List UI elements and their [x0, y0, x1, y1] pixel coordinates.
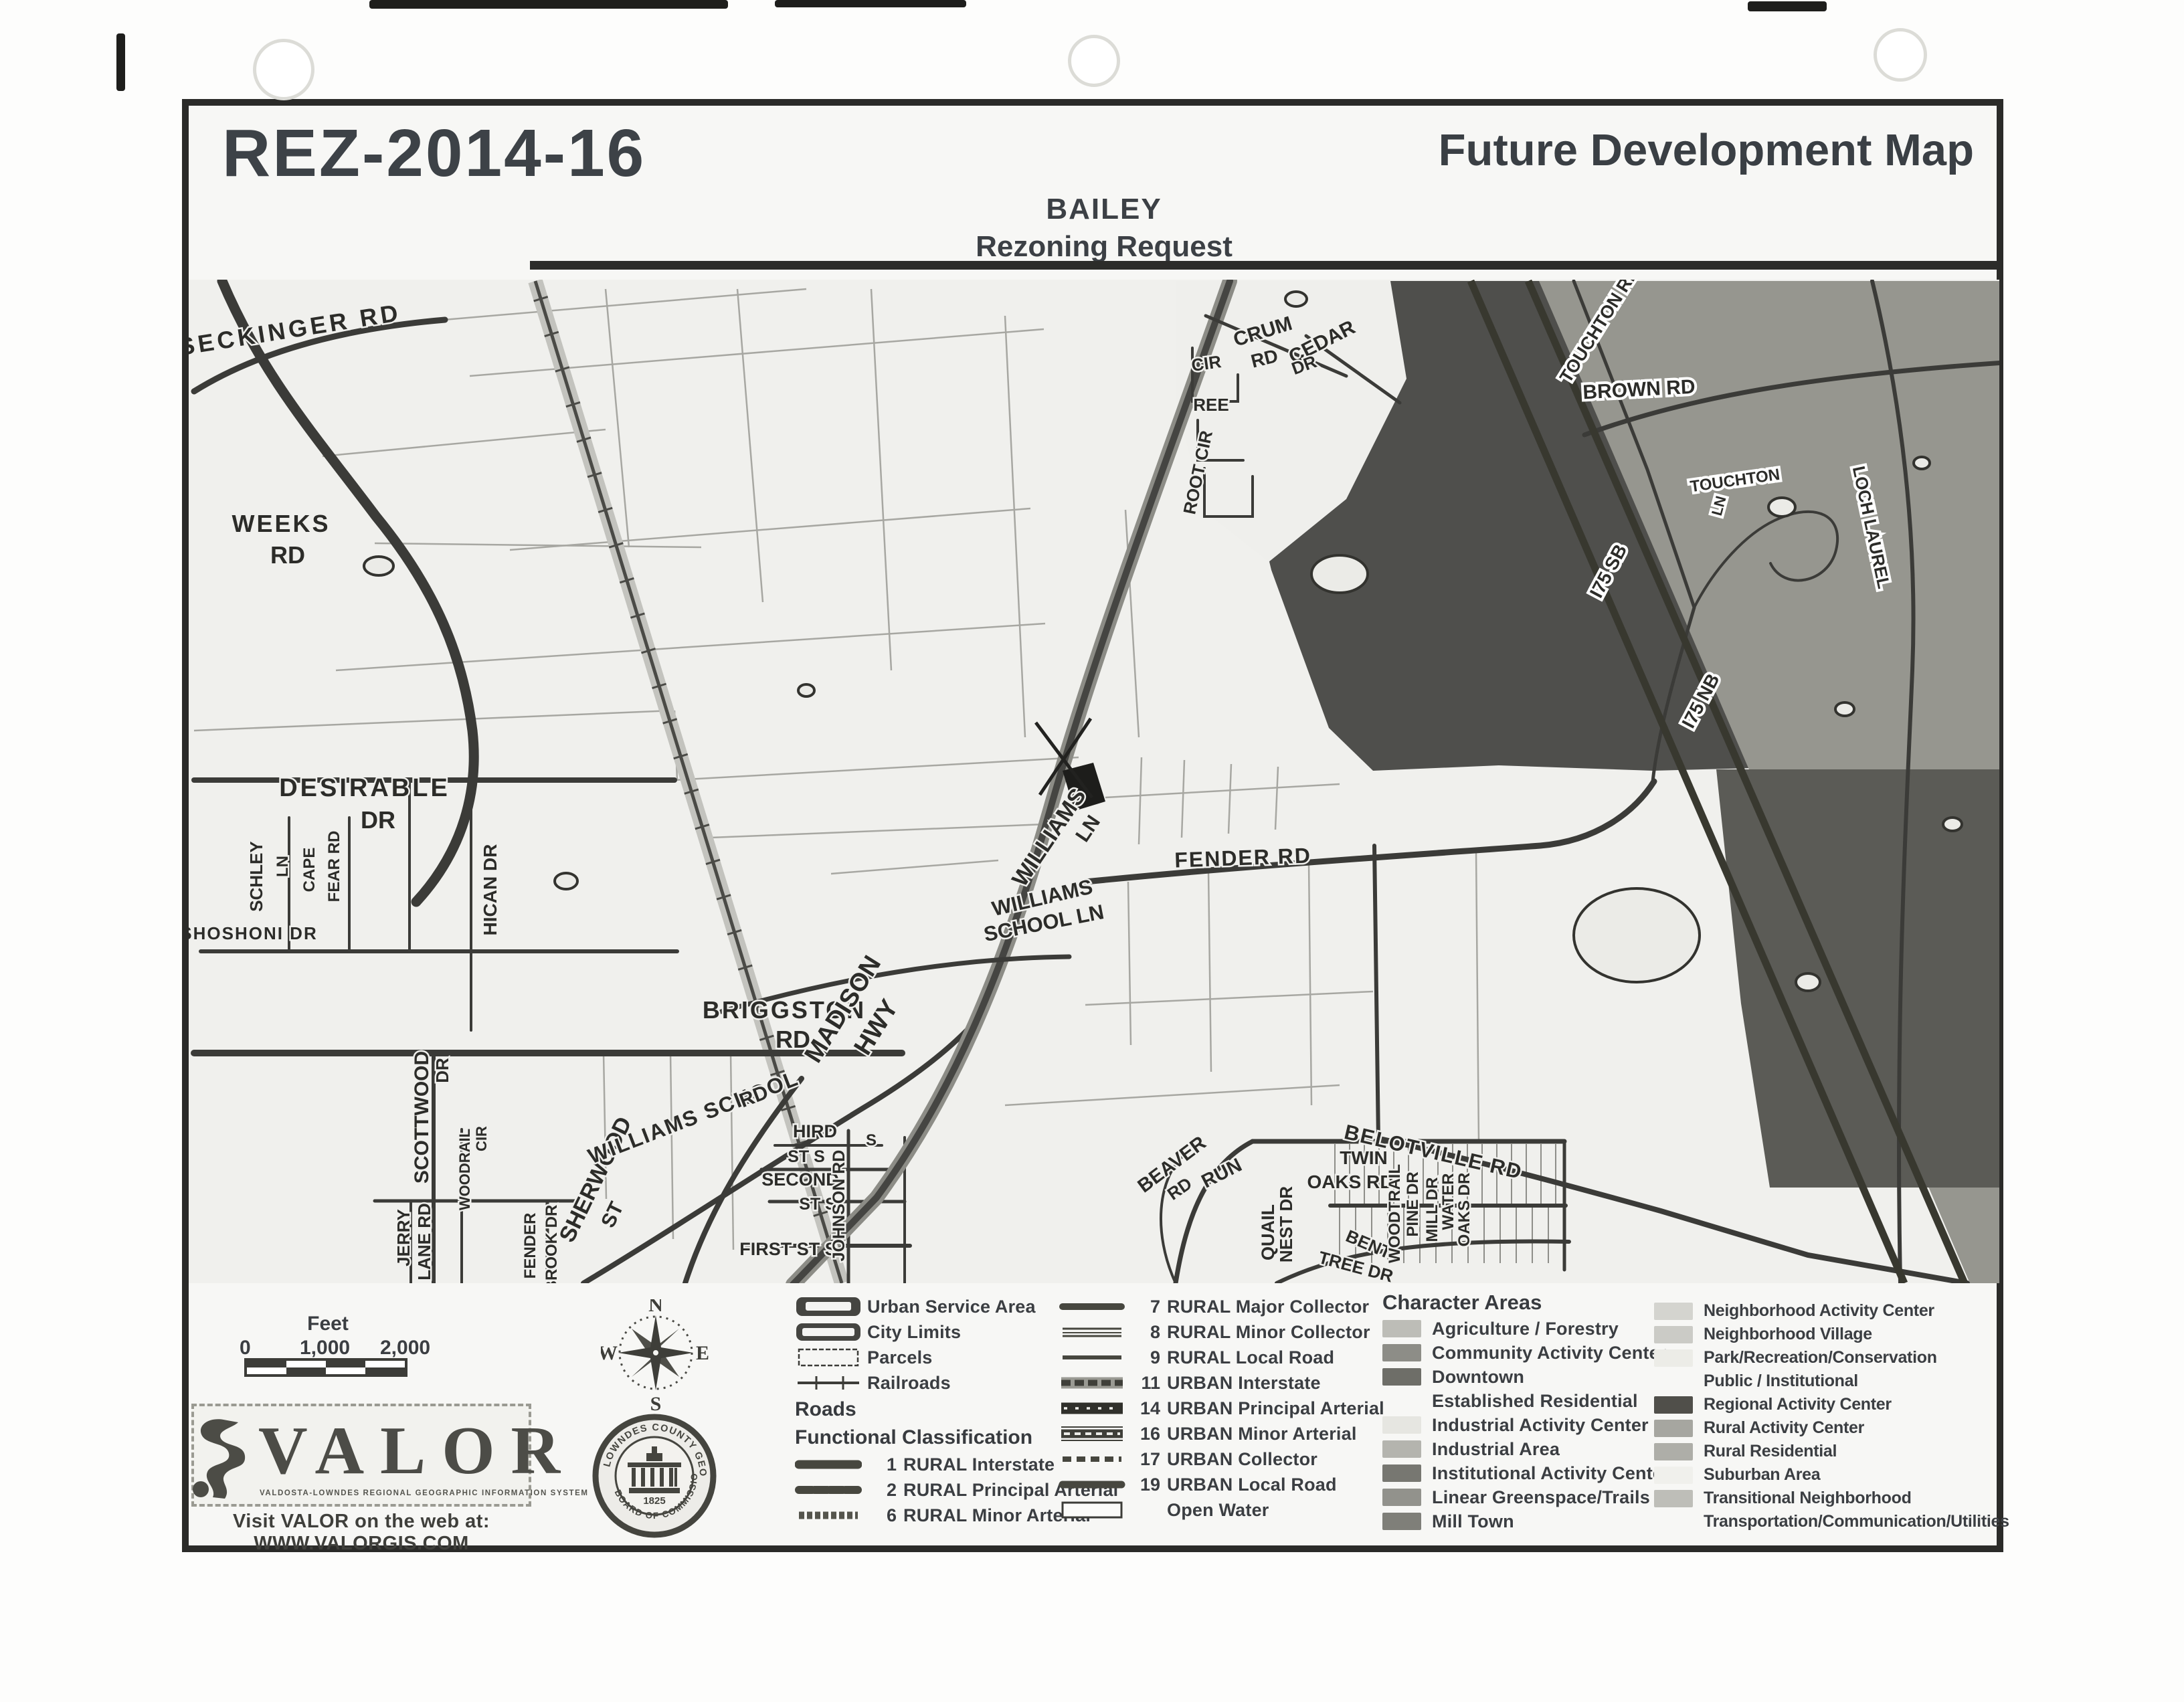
legend-item: Neighborhood Activity Center: [1654, 1299, 2002, 1323]
legend-item: Community Activity Center: [1382, 1341, 1650, 1365]
legend-item: Neighborhood Village: [1654, 1323, 2002, 1346]
legend-item: Regional Activity Center: [1654, 1393, 2002, 1416]
pond: [364, 557, 393, 575]
scanned-rezoning-map-page: REZ-2014-16 Future Development Map BAILE…: [0, 0, 2184, 1702]
road-label: CAPE: [300, 848, 318, 892]
legend-item: Industrial Activity Center: [1382, 1413, 1650, 1437]
legend-item: 8RURAL Minor Collector: [1059, 1319, 1380, 1345]
road-label: SCHLEY: [246, 841, 266, 911]
legend-label: Community Activity Center: [1432, 1343, 1667, 1363]
road-label: QUAIL: [1258, 1204, 1278, 1260]
legend-symbol: [795, 1347, 867, 1367]
legend-class-number: 7: [1131, 1297, 1167, 1317]
legend-item: Agriculture / Forestry: [1382, 1317, 1650, 1341]
legend-class-number: 17: [1131, 1449, 1167, 1470]
legend-label: URBAN Minor Arterial: [1167, 1424, 1357, 1444]
legend-item: Downtown: [1382, 1365, 1650, 1389]
legend-item: Established Residential: [1382, 1389, 1650, 1413]
valor-website-line: Visit VALOR on the web at: WWW.VALORGIS.…: [191, 1511, 531, 1555]
legend-label: Park/Recreation/Conservation: [1704, 1348, 1937, 1367]
pond: [1943, 818, 1962, 831]
legend-label: URBAN Collector: [1167, 1449, 1317, 1470]
legend-heading-character-areas: Character Areas: [1382, 1289, 1650, 1317]
legend-item: 9RURAL Local Road: [1059, 1345, 1380, 1370]
legend-label: URBAN Local Road: [1167, 1475, 1337, 1495]
compass-rose-icon: N S W E: [601, 1299, 711, 1412]
scale-bar-segment: [247, 1361, 286, 1367]
legend-class-number: 8: [1131, 1322, 1167, 1343]
valor-logo-mark: [182, 1416, 256, 1503]
road-label: BROOK DR: [543, 1205, 561, 1293]
scale-tick-2000: 2,000: [380, 1337, 430, 1359]
legend-item: 6RURAL Minor Arterial: [795, 1503, 1063, 1528]
valor-logo-subtitle: VALDOSTA-LOWNDES REGIONAL GEOGRAPHIC INF…: [260, 1489, 589, 1497]
road-label: DR: [432, 1058, 452, 1083]
scale-bar: [244, 1358, 407, 1377]
legend-item: Rural Residential: [1654, 1440, 2002, 1463]
scale-tick-1000: 1,000: [300, 1337, 350, 1359]
pond: [1835, 702, 1854, 716]
legend-column-character-areas-2: Neighborhood Activity CenterNeighborhood…: [1654, 1299, 2002, 1533]
pond: [1796, 973, 1820, 991]
legend-symbol: [1059, 1322, 1131, 1342]
legend-symbol: [1059, 1347, 1131, 1367]
legend-label: RURAL Minor Collector: [1167, 1322, 1370, 1343]
legend-swatch: [1382, 1513, 1421, 1530]
legend-label: City Limits: [867, 1322, 961, 1343]
road-label: JERRY: [393, 1209, 414, 1266]
legend-swatch: [1654, 1303, 1693, 1320]
legend-label: Agriculture / Forestry: [1432, 1319, 1619, 1339]
legend-label: RURAL Local Road: [1167, 1347, 1334, 1368]
legend-swatch: [1382, 1489, 1421, 1506]
road-label: FEAR RD: [325, 831, 343, 903]
legend-heading-functional-classification: Functional Classification: [795, 1424, 1063, 1452]
legend-symbol: [795, 1373, 867, 1393]
legend-item: Rural Activity Center: [1654, 1416, 2002, 1440]
legend-item: 7RURAL Major Collector: [1059, 1294, 1380, 1319]
road-label: SHOSHONI DR: [180, 923, 317, 943]
legend-item: Mill Town: [1382, 1509, 1650, 1533]
legend-label: Downtown: [1432, 1367, 1524, 1388]
legend-item: Transportation/Communication/Utilities: [1654, 1510, 2002, 1533]
road-label: OAKS RD: [1307, 1171, 1393, 1192]
legend-class-number: 9: [1131, 1347, 1167, 1368]
legend-class-number: 1: [867, 1454, 903, 1475]
legend-heading-roads: Roads: [795, 1396, 1063, 1424]
legend-item: Railroads: [795, 1370, 1063, 1396]
road-label: NEST DR: [1276, 1186, 1296, 1262]
legend-label: Parcels: [867, 1347, 932, 1368]
scale-bar-segment: [286, 1367, 326, 1374]
legend-symbol: [1059, 1424, 1131, 1444]
legend-label: URBAN Interstate: [1167, 1373, 1321, 1394]
road-label: FENDER RD: [1174, 843, 1312, 872]
legend-label: Established Residential: [1432, 1391, 1638, 1412]
road-label: JOHNSON RD: [830, 1150, 848, 1262]
legend-class-number: 19: [1131, 1475, 1167, 1495]
legend-label: Urban Service Area: [867, 1297, 1036, 1317]
legend-item: Transitional Neighborhood: [1654, 1487, 2002, 1510]
legend-symbol: [1059, 1500, 1131, 1520]
legend-label: Neighborhood Village: [1704, 1325, 1872, 1344]
legend-item: Urban Service Area: [795, 1294, 1063, 1319]
legend-label: Transportation/Communication/Utilities: [1704, 1512, 2009, 1531]
road-label: WOODRAIL: [456, 1129, 473, 1210]
road-label: WATER: [1439, 1173, 1457, 1230]
legend-label: Public / Institutional: [1704, 1372, 1858, 1391]
compass-north-label: N: [648, 1299, 663, 1316]
pond: [1311, 555, 1368, 593]
road-label: S: [866, 1131, 877, 1149]
legend-label: RURAL Major Collector: [1167, 1297, 1369, 1317]
legend-item: 1RURAL Interstate: [795, 1452, 1063, 1477]
pond: [555, 873, 577, 889]
legend-label: Open Water: [1167, 1500, 1269, 1521]
legend-label: Linear Greenspace/Trails: [1432, 1487, 1650, 1508]
legend-symbol: [795, 1480, 867, 1500]
legend-item: 11URBAN Interstate: [1059, 1370, 1380, 1396]
road-label: ST S: [788, 1147, 825, 1166]
road-label: RD: [270, 541, 305, 569]
legend-class-number: 2: [867, 1480, 903, 1501]
legend-swatch: [1654, 1396, 1693, 1414]
legend-column-character-areas: Character AreasAgriculture / ForestryCom…: [1382, 1289, 1650, 1533]
scale-bar-segment: [365, 1361, 405, 1367]
road-label: HICAN DR: [480, 844, 500, 936]
legend-symbol: [795, 1505, 867, 1525]
road-label: CIR: [473, 1126, 490, 1151]
legend-swatch: [1382, 1440, 1421, 1458]
legend-class-number: 11: [1131, 1373, 1167, 1394]
road-label: LANE RD: [414, 1203, 434, 1281]
legend-label: Rural Residential: [1704, 1442, 1837, 1461]
legend-symbol: [1059, 1398, 1131, 1418]
legend-label: URBAN Principal Arterial: [1167, 1398, 1384, 1419]
legend-symbol: [795, 1297, 867, 1317]
legend-swatch: [1382, 1392, 1421, 1410]
pond: [1574, 888, 1700, 982]
legend-swatch: [1654, 1513, 1693, 1531]
legend-swatch: [1382, 1320, 1421, 1337]
legend-label: Industrial Area: [1432, 1439, 1560, 1460]
road-label: SECOND: [761, 1169, 839, 1190]
scale-bar-segment: [247, 1367, 286, 1374]
legend-item: City Limits: [795, 1319, 1063, 1345]
pond: [1914, 457, 1930, 469]
legend-label: Railroads: [867, 1373, 951, 1394]
legend-swatch: [1382, 1368, 1421, 1386]
road-label: DR: [361, 806, 395, 834]
road-label: WOODTRAIL: [1386, 1164, 1404, 1263]
legend-item: 19URBAN Local Road: [1059, 1472, 1380, 1497]
legend-label: Rural Activity Center: [1704, 1418, 1864, 1438]
legend-item: Linear Greenspace/Trails: [1382, 1485, 1650, 1509]
legend-item: Institutional Activity Center: [1382, 1461, 1650, 1485]
pond: [798, 684, 814, 696]
legend-swatch: [1654, 1490, 1693, 1507]
legend-item: 14URBAN Principal Arterial: [1059, 1396, 1380, 1421]
legend-label: Mill Town: [1432, 1511, 1514, 1532]
legend-symbol: [795, 1454, 867, 1475]
pond: [1285, 292, 1307, 306]
road-label: OAKS DR: [1455, 1173, 1473, 1247]
valor-logo-name: VALOR: [258, 1412, 576, 1490]
road-label: PINE DR: [1404, 1171, 1422, 1236]
scale-bar-segment: [326, 1367, 365, 1374]
legend-item: 16URBAN Minor Arterial: [1059, 1421, 1380, 1446]
legend-item: Industrial Area: [1382, 1437, 1650, 1461]
legend-item: Public / Institutional: [1654, 1369, 2002, 1393]
seal-year: 1825: [643, 1495, 665, 1507]
valor-logo-box: VALOR VALDOSTA-LOWNDES REGIONAL GEOGRAPH…: [191, 1404, 531, 1507]
legend-swatch: [1654, 1373, 1693, 1390]
county-seal: LOWNDES COUNTY GEORGIA BOARD OF COMMISSI…: [587, 1409, 721, 1543]
scale-bar-segment: [365, 1367, 405, 1374]
legend-swatch: [1654, 1443, 1693, 1460]
scale-tick-labels: 0 1,000 2,000: [227, 1335, 428, 1358]
legend-item: Park/Recreation/Conservation: [1654, 1346, 2002, 1369]
legend-label: Neighborhood Activity Center: [1704, 1301, 1934, 1321]
legend-label: Industrial Activity Center: [1432, 1415, 1649, 1436]
compass-west-label: W: [601, 1342, 618, 1364]
road-label: MILL DR: [1423, 1177, 1441, 1242]
road-label: SCOTTWOOD: [411, 1051, 433, 1184]
legend-column-functional-classes: 7RURAL Major Collector8RURAL Minor Colle…: [1059, 1294, 1380, 1523]
legend-item: Parcels: [795, 1345, 1063, 1370]
legend-swatch: [1382, 1344, 1421, 1361]
road-label: FENDER: [521, 1213, 539, 1279]
legend-swatch: [1654, 1349, 1693, 1367]
road-label: HIRD: [793, 1121, 837, 1141]
legend-swatch: [1382, 1416, 1421, 1434]
legend-item: 2RURAL Principal Arterial: [795, 1477, 1063, 1503]
legend-symbol: [1059, 1297, 1131, 1317]
legend-class-number: 16: [1131, 1424, 1167, 1444]
legend-symbol: [1059, 1475, 1131, 1495]
legend-swatch: [1654, 1467, 1693, 1484]
legend-item: 17URBAN Collector: [1059, 1446, 1380, 1472]
legend-swatch: [1654, 1326, 1693, 1343]
road-label: WEEKS: [232, 510, 330, 537]
legend-symbol: [1059, 1373, 1131, 1393]
scale-bar-segment: [286, 1361, 326, 1367]
legend-label: Regional Activity Center: [1704, 1395, 1892, 1414]
pond: [1768, 498, 1795, 516]
legend-symbol: [1059, 1449, 1131, 1469]
legend-label: RURAL Interstate: [903, 1454, 1055, 1475]
map-layer: SECKINGER RDWEEKSRDDESIRABLEDRSHOSHONI D…: [177, 263, 2004, 1292]
legend-label: Suburban Area: [1704, 1465, 1820, 1485]
road-label: REE: [1193, 395, 1228, 415]
legend-swatch: [1382, 1464, 1421, 1482]
scale-bar-block: Feet 0 1,000 2,000: [227, 1313, 428, 1377]
road-label: LN: [274, 856, 292, 877]
road-label: DESIRABLE: [279, 774, 450, 802]
compass-east-label: E: [696, 1342, 709, 1364]
scale-units-label: Feet: [227, 1313, 428, 1335]
legend-label: Institutional Activity Center: [1432, 1463, 1670, 1484]
legend-item: Open Water: [1059, 1497, 1380, 1523]
scale-bar-segment: [326, 1361, 365, 1367]
road-label: CIR: [1190, 351, 1222, 375]
legend-column-symbols: Urban Service AreaCity LimitsParcelsRail…: [795, 1294, 1063, 1528]
legend-class-number: 6: [867, 1505, 903, 1526]
legend-class-number: 14: [1131, 1398, 1167, 1419]
legend-item: Suburban Area: [1654, 1463, 2002, 1487]
legend-label: Transitional Neighborhood: [1704, 1489, 1912, 1508]
scale-tick-0: 0: [240, 1337, 251, 1359]
road-label: FIRST ST S: [739, 1239, 837, 1259]
legend-symbol: [795, 1322, 867, 1342]
legend-swatch: [1654, 1420, 1693, 1437]
